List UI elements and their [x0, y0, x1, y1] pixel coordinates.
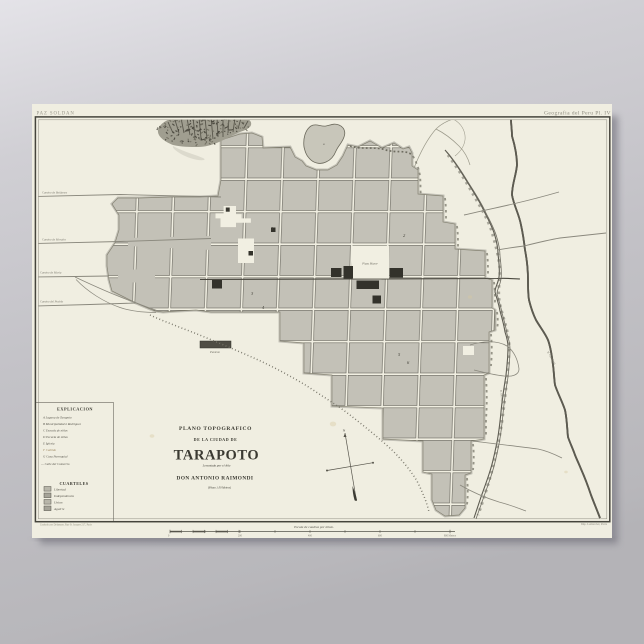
svg-text:Grabado por Delamare, Rue St J: Grabado por Delamare, Rue St Jacques 217… [40, 523, 92, 526]
svg-text:— Calle del Comercio: — Calle del Comercio [40, 462, 70, 466]
svg-text:Plaza Mayor: Plaza Mayor [361, 262, 378, 266]
svg-text:Camino de Maria: Camino de Maria [40, 271, 62, 275]
svg-text:G Casa Parroquial: G Casa Parroquial [43, 455, 68, 459]
svg-text:C Escuela de niños: C Escuela de niños [43, 429, 68, 433]
svg-text:Panteon: Panteon [209, 350, 220, 354]
svg-text:PAZ SOLDAN: PAZ SOLDAN [37, 111, 75, 116]
svg-text:Camino de Botijones: Camino de Botijones [42, 191, 68, 195]
svg-text:E Iglesia: E Iglesia [42, 442, 55, 446]
svg-text:D Escuela de niñas: D Escuela de niñas [42, 435, 68, 439]
svg-text:Escala de cuadras por kilom.: Escala de cuadras por kilom. [293, 525, 334, 529]
svg-text:Independencia: Independencia [53, 494, 74, 498]
svg-text:TARAPOTO: TARAPOTO [174, 448, 260, 464]
svg-text:A Laguna de Tarapoto: A Laguna de Tarapoto [42, 416, 72, 420]
svg-text:Union: Union [54, 501, 63, 505]
svg-text:Levantado por el Año: Levantado por el Año [202, 464, 231, 468]
svg-text:1: 1 [271, 226, 273, 231]
svg-text:DE LA CIUDAD DE: DE LA CIUDAD DE [194, 437, 238, 442]
svg-text:DON ANTONIO RAIMONDI: DON ANTONIO RAIMONDI [177, 476, 254, 482]
svg-text:F Cabildo: F Cabildo [42, 448, 56, 452]
svg-text:(Plano 1:50 Metros): (Plano 1:50 Metros) [208, 487, 231, 490]
svg-text:B Municipalidad ó Rodriguez: B Municipalidad ó Rodriguez [43, 422, 82, 426]
svg-text:Libertad: Libertad [53, 488, 66, 492]
svg-text:PLANO TOPOGRAFICO: PLANO TOPOGRAFICO [179, 426, 252, 432]
svg-text:Geografia del Peru Pl. IV: Geografia del Peru Pl. IV [544, 110, 611, 117]
svg-text:CUARTELES: CUARTELES [59, 481, 88, 486]
svg-text:Camino de Morales: Camino de Morales [42, 238, 67, 242]
svg-text:800 Metros: 800 Metros [444, 535, 456, 538]
svg-text:EXPLICACION: EXPLICACION [57, 407, 93, 412]
svg-text:Aguirre: Aguirre [53, 507, 65, 511]
svg-text:Camino del Pueblo: Camino del Pueblo [40, 300, 64, 304]
